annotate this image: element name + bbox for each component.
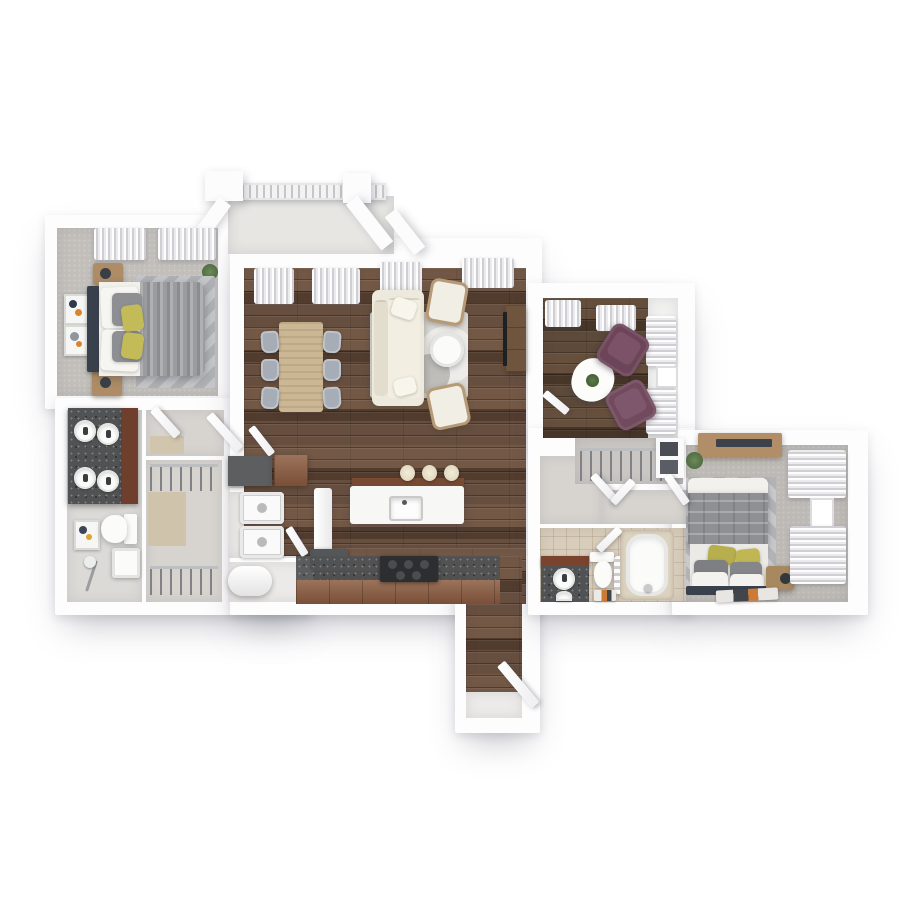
bedroom1-curtain-right — [158, 228, 216, 260]
closet1-hanging-rail-bottom — [150, 566, 218, 595]
canister-icon — [400, 465, 415, 481]
den-plant-icon — [586, 374, 599, 387]
kitchen-base-cabinets — [296, 580, 500, 604]
bathroom2-toilet-bowl — [594, 561, 612, 588]
bedroom2-duvet — [688, 493, 768, 546]
water-heater — [228, 566, 272, 596]
tub-faucet-icon — [644, 584, 652, 592]
bedroom1-duvet — [140, 282, 205, 376]
washer — [240, 492, 284, 524]
art-dot — [86, 534, 92, 540]
dining-chair — [323, 359, 341, 381]
bathroom2-sink-lower — [556, 591, 572, 601]
island-faucet-icon — [402, 500, 407, 505]
art-dot — [76, 341, 82, 347]
art-dot — [70, 332, 79, 341]
art-dot — [79, 526, 87, 534]
dining-chair — [260, 330, 279, 353]
den-curtain-right-1 — [646, 316, 676, 366]
armchair-cushion — [612, 386, 648, 421]
dining-chair — [322, 386, 341, 409]
closet1-beige-tile — [148, 492, 186, 546]
shower-head-icon — [84, 556, 96, 568]
floor-plan-stage — [0, 0, 900, 900]
faucet-icon — [83, 474, 88, 482]
burner-icon — [396, 571, 405, 580]
bedroom2-window-frame — [810, 498, 834, 528]
art-dot — [69, 300, 77, 308]
bedroom2-plant-icon — [686, 452, 703, 469]
burner-icon — [412, 571, 421, 580]
entry-threshold — [466, 692, 522, 718]
canister-icon — [444, 465, 459, 481]
vestibule-beige-tile — [150, 436, 184, 454]
lamp-icon — [100, 268, 111, 279]
bathroom1-art — [74, 520, 100, 550]
dryer — [240, 526, 284, 558]
tv-console — [506, 306, 526, 372]
washer-door-icon — [257, 503, 267, 513]
dining-curtain-2 — [312, 268, 360, 304]
dining-curtain-1 — [254, 268, 294, 304]
sofa-back-cushions — [374, 300, 388, 396]
bedroom2-curtain-1 — [788, 450, 846, 498]
bedroom1-pillow-yellow-1 — [120, 304, 144, 333]
burner-icon — [388, 560, 397, 569]
bathroom1-shower-tray — [112, 548, 140, 578]
bedroom1-curtain-left — [94, 228, 146, 260]
burner-icon — [404, 560, 413, 569]
dryer-door-icon — [257, 537, 267, 547]
bathroom1-vanity-wood-cabinet — [122, 408, 138, 504]
art-dot — [75, 309, 82, 316]
accent-chair-1 — [424, 277, 469, 327]
faucet-icon — [83, 427, 88, 435]
utility-wood-cabinet — [274, 455, 308, 486]
tv — [503, 312, 507, 366]
canister-icon — [422, 465, 437, 481]
den-curtain-top-1 — [545, 300, 581, 327]
bath-mat — [594, 590, 616, 601]
closet1-hanging-rail-top — [150, 464, 218, 491]
dining-table — [279, 322, 323, 412]
dining-chair — [322, 330, 341, 353]
bedroom2-curtain-2 — [790, 526, 846, 584]
shelf-cubby — [660, 442, 678, 456]
faucet-icon — [106, 430, 111, 438]
bedroom2-dresser-shelf — [698, 433, 782, 457]
kitchen-fridge — [314, 488, 332, 552]
den-window-frame — [656, 366, 678, 388]
dining-chair — [260, 386, 279, 409]
utility-dark-cabinet — [228, 456, 272, 486]
faucet-icon — [562, 574, 567, 582]
bedroom1-pillow-yellow-2 — [120, 332, 144, 361]
shelf-cubby — [660, 460, 678, 474]
sofa — [372, 290, 424, 406]
lamp-icon — [100, 377, 111, 388]
balcony-column-left — [205, 171, 243, 201]
faucet-icon — [106, 477, 111, 485]
armchair-cushion — [605, 330, 643, 367]
living-curtain-2 — [462, 258, 514, 288]
cooktop — [380, 556, 438, 582]
dresser-dark-object — [716, 439, 772, 447]
dining-chair — [261, 359, 279, 381]
coffee-table — [430, 333, 464, 367]
hall-shelf-unit — [656, 438, 684, 478]
burner-icon — [420, 560, 429, 569]
bathroom1-toilet-bowl — [101, 515, 127, 543]
